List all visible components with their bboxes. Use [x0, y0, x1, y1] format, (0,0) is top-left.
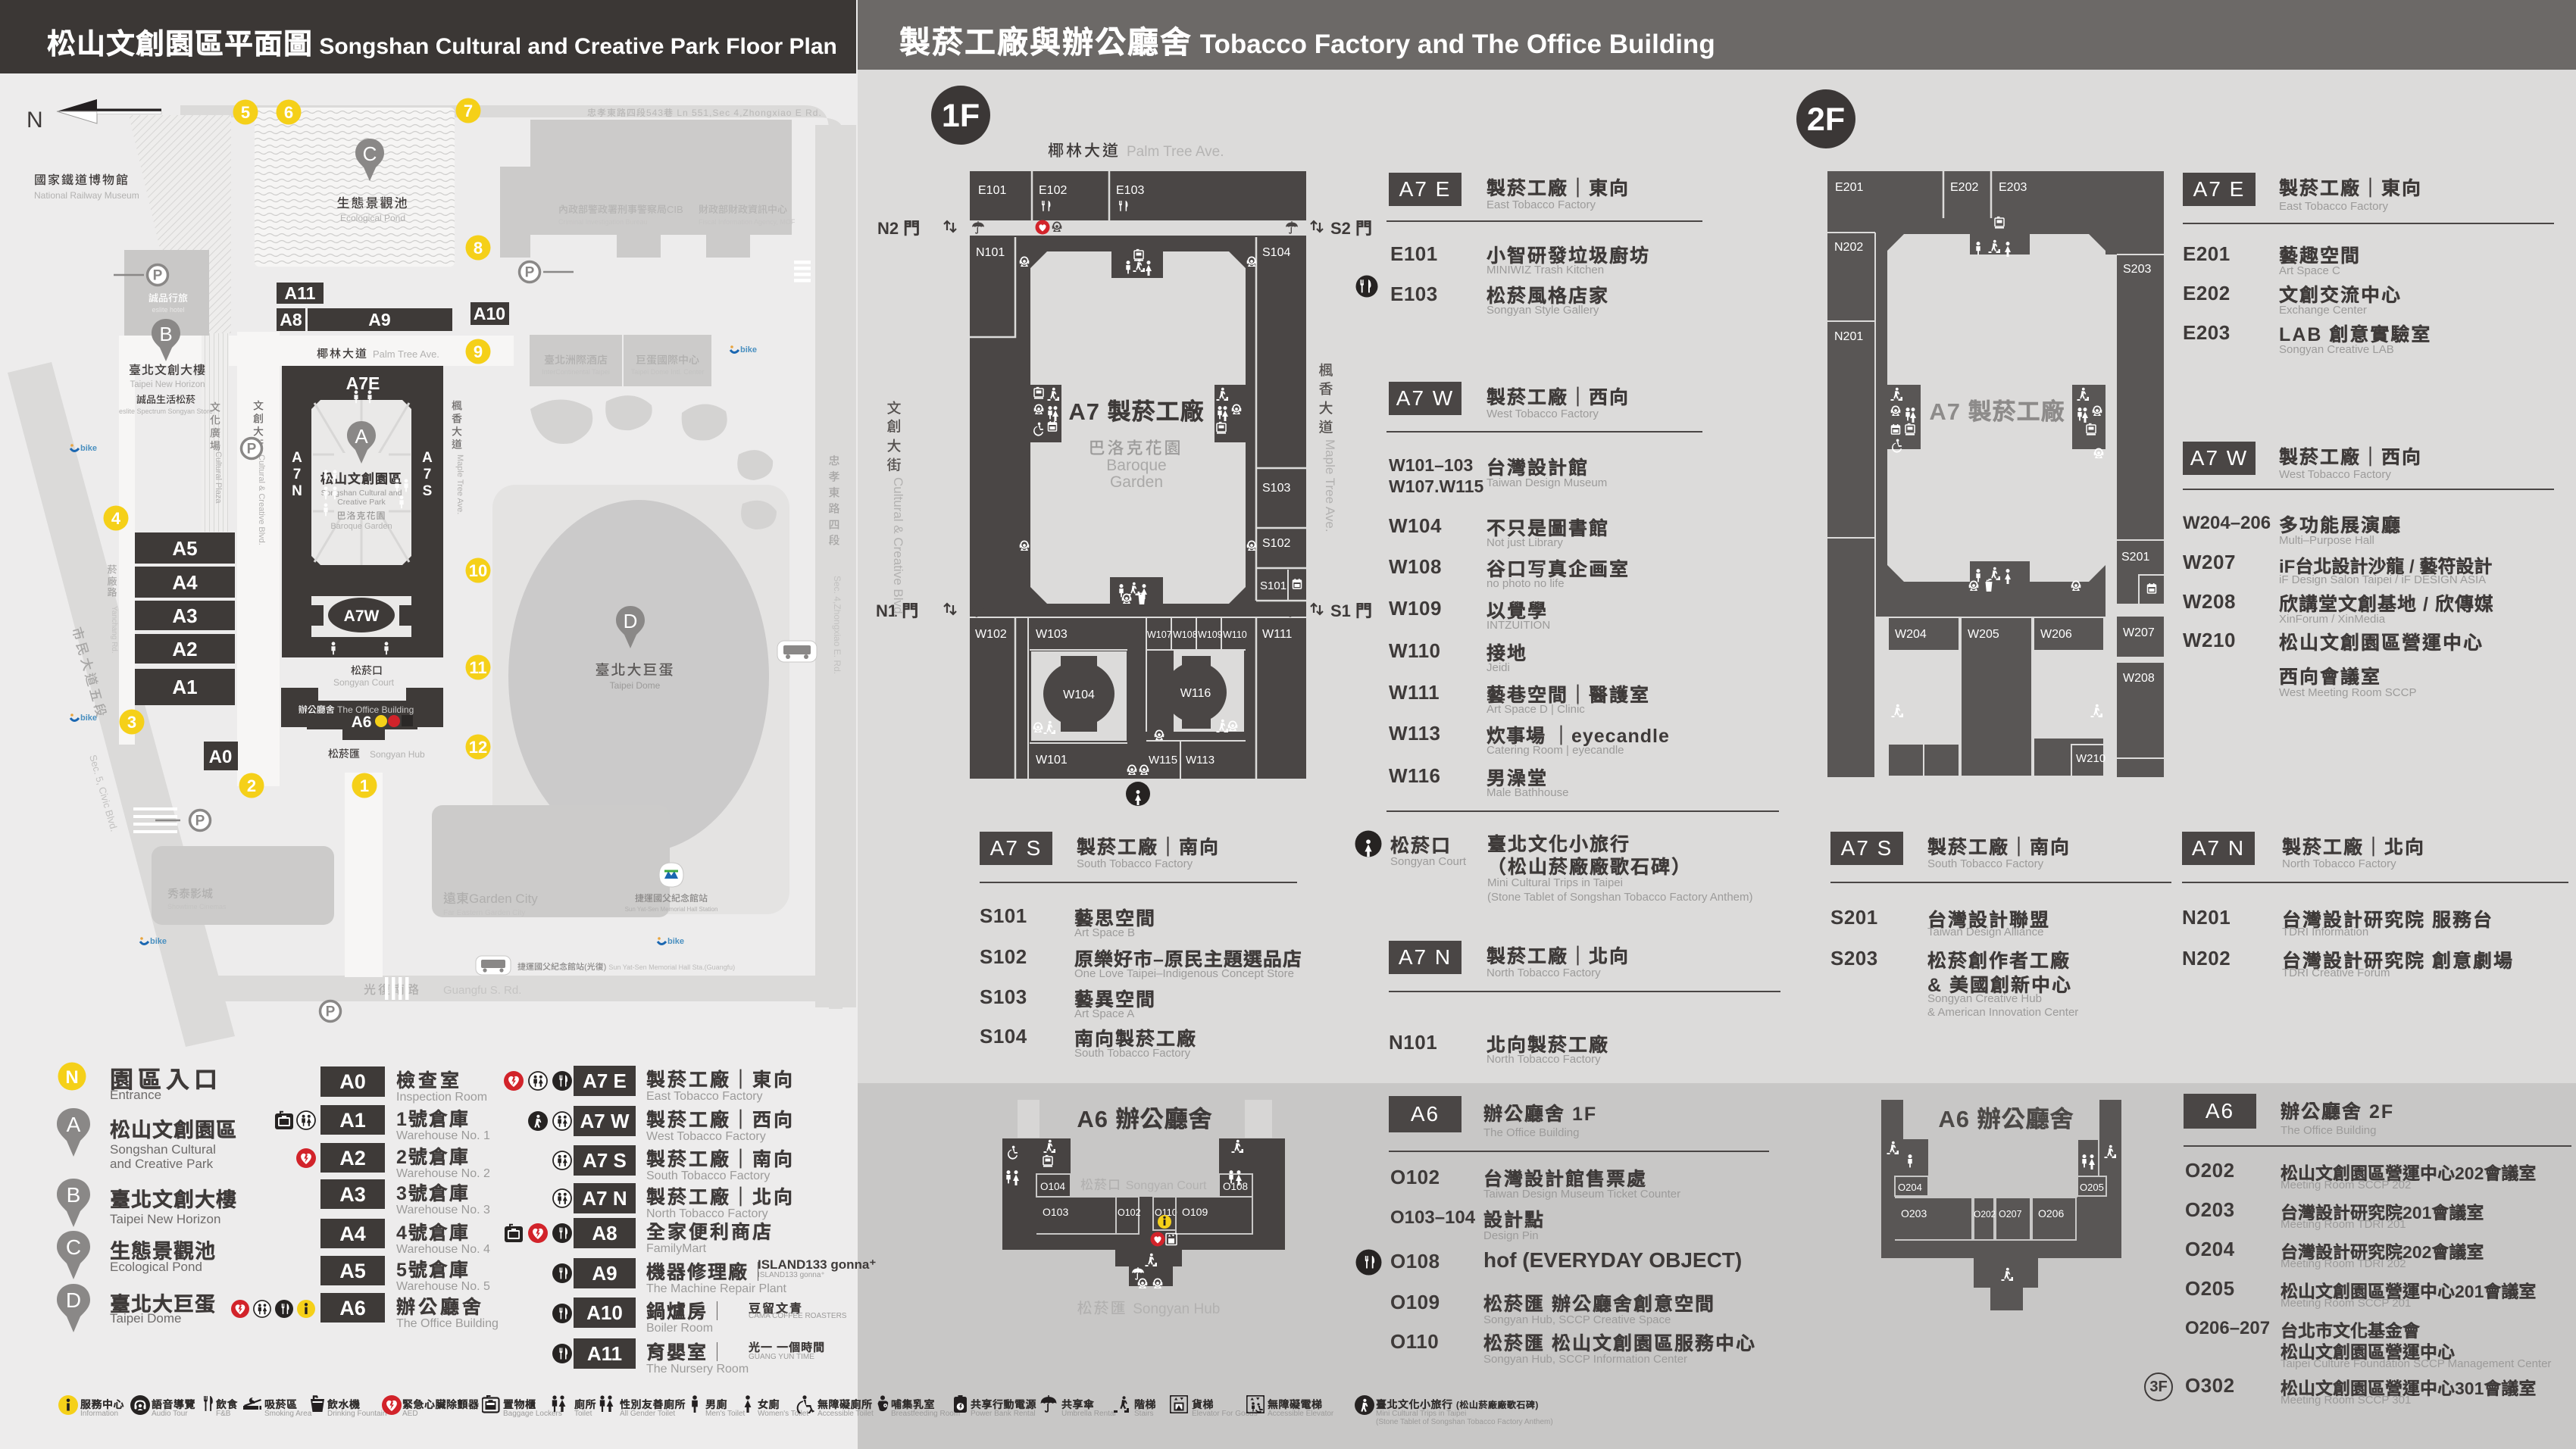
svg-text:D: D [66, 1288, 81, 1312]
svg-text:楓香大道: 楓香大道 [1317, 362, 1333, 438]
svg-text:N101: N101 [976, 246, 1005, 259]
svg-text:W205: W205 [1968, 628, 1999, 641]
svg-text:A5: A5 [172, 537, 197, 560]
svg-text:9: 9 [474, 342, 483, 361]
svg-text:秀泰影城: 秀泰影城 [167, 888, 213, 901]
svg-text:O206: O206 [2038, 1207, 2064, 1219]
svg-text:O202: O202 [1974, 1209, 1996, 1219]
svg-text:Taipei Dome: Taipei Dome [610, 680, 661, 691]
svg-text:2F: 2F [1807, 101, 1845, 138]
svg-text:D: D [624, 610, 638, 632]
svg-text:O205: O205 [2080, 1182, 2104, 1193]
svg-text:Showtime Cinemas: Showtime Cinemas [167, 903, 227, 910]
svg-text:W110: W110 [1223, 629, 1247, 640]
svg-text:Songyan Court: Songyan Court [333, 677, 395, 688]
svg-text:O108: O108 [1223, 1181, 1248, 1192]
svg-text:Songyan Hub: Songyan Hub [370, 749, 425, 760]
svg-text:捷運國父紀念館站(光復) Sun Yat-Sen Memor: 捷運國父紀念館站(光復) Sun Yat-Sen Memorial Hall S… [517, 962, 735, 972]
svg-text:W108: W108 [1173, 629, 1198, 640]
svg-text:A11: A11 [285, 283, 316, 303]
svg-text:A6: A6 [352, 714, 372, 731]
svg-text:椰林大道: 椰林大道 [317, 348, 368, 361]
svg-text:A: A [292, 450, 302, 466]
svg-text:Taipei Dome Intl. Center: Taipei Dome Intl. Center [631, 368, 705, 376]
svg-text:O204: O204 [1898, 1182, 1922, 1193]
svg-text:Cultural & Creative Blvd.: Cultural & Creative Blvd. [257, 454, 266, 545]
svg-text:B: B [159, 323, 172, 345]
svg-text:3: 3 [127, 713, 136, 732]
svg-text:A: A [355, 425, 368, 448]
svg-text:財政部財政資訊中心: 財政部財政資訊中心 [699, 204, 787, 215]
svg-text:10: 10 [469, 561, 487, 580]
svg-text:Creative Park: Creative Park [337, 498, 386, 507]
svg-text:W101: W101 [1036, 754, 1068, 767]
svg-text:Sec. 4,Zhongxiao E. Rd.: Sec. 4,Zhongxiao E. Rd. [832, 576, 843, 674]
svg-text:捷運國父紀念館站: 捷運國父紀念館站 [635, 893, 708, 904]
svg-text:O103: O103 [1043, 1206, 1068, 1218]
svg-text:W210: W210 [2076, 752, 2106, 765]
svg-text:N: N [292, 483, 302, 499]
svg-text:W207: W207 [2123, 626, 2155, 639]
svg-text:N: N [65, 1067, 78, 1088]
svg-text:內政部警政署刑事警察局CIB: 內政部警政署刑事警察局CIB [558, 204, 683, 215]
svg-text:臺北大巨蛋: 臺北大巨蛋 [595, 662, 674, 679]
svg-text:O203: O203 [1901, 1207, 1927, 1219]
svg-text:Maple Tree Ave.: Maple Tree Ave. [455, 454, 464, 514]
svg-text:A9: A9 [368, 310, 390, 329]
svg-text:生態景觀池: 生態景觀池 [337, 196, 409, 211]
svg-text:Cultural & Creative Blvd.: Cultural & Creative Blvd. [891, 477, 905, 617]
svg-text:松菸口: 松菸口 [351, 664, 383, 676]
svg-text:S201: S201 [2121, 551, 2149, 564]
svg-text:E203: E203 [1999, 181, 2027, 194]
svg-text:B: B [67, 1183, 81, 1207]
svg-text:Far Eastern Garden City: Far Eastern Garden City [443, 909, 525, 917]
svg-text:C: C [66, 1235, 81, 1259]
svg-text:W208: W208 [2123, 672, 2155, 685]
svg-text:A7 製菸工廠: A7 製菸工廠 [1068, 398, 1204, 425]
svg-text:A6 辦公廳舍: A6 辦公廳舍 [1938, 1106, 2074, 1132]
svg-text:松菸匯 Songyan Hub: 松菸匯 Songyan Hub [1077, 1301, 1221, 1317]
svg-text:臺北文創大樓: 臺北文創大樓 [129, 364, 206, 377]
svg-text:4: 4 [111, 509, 121, 528]
svg-text:Criminal Investigation Bureau: Criminal Investigation Bureau [558, 218, 648, 226]
svg-text:8: 8 [474, 239, 483, 258]
svg-text:W206: W206 [2040, 628, 2072, 641]
svg-text:7: 7 [464, 101, 473, 120]
svg-text:N202: N202 [1834, 241, 1863, 254]
svg-text:Guangfu S. Rd.: Guangfu S. Rd. [443, 984, 521, 997]
svg-text:6: 6 [284, 103, 293, 122]
svg-text:臺北洲際酒店: 臺北洲際酒店 [544, 354, 608, 366]
svg-text:楓香大道: 楓香大道 [451, 400, 463, 451]
svg-text:W113: W113 [1186, 754, 1215, 767]
svg-text:12: 12 [469, 738, 487, 757]
svg-text:N2 門: N2 門 [877, 219, 920, 238]
svg-text:E201: E201 [1835, 181, 1863, 194]
svg-text:National Railway Museum: National Railway Museum [34, 190, 139, 201]
svg-text:1F: 1F [942, 98, 980, 134]
svg-text:忠孝東路四段: 忠孝東路四段 [827, 454, 840, 550]
svg-text:A: A [67, 1113, 81, 1136]
svg-text:A7W: A7W [344, 607, 380, 625]
svg-text:S103: S103 [1262, 482, 1290, 495]
svg-text:7: 7 [293, 467, 302, 482]
svg-text:Sun Yat-Sen Memorial Hall Stat: Sun Yat-Sen Memorial Hall Station [625, 906, 718, 913]
svg-text:N201: N201 [1834, 330, 1863, 343]
svg-text:eslite hotel: eslite hotel [152, 306, 184, 314]
svg-text:A: A [422, 450, 433, 466]
svg-text:松山文創園區: 松山文創園區 [320, 472, 402, 486]
svg-text:巴洛克花園: 巴洛克花園 [1088, 439, 1183, 457]
svg-text:2: 2 [247, 776, 256, 795]
svg-text:W103: W103 [1036, 628, 1068, 641]
svg-text:遠東Garden City: 遠東Garden City [443, 892, 538, 906]
svg-text:巨蛋國際中心: 巨蛋國際中心 [636, 354, 699, 366]
svg-text:O109: O109 [1182, 1206, 1208, 1218]
svg-text:Palm Tree Ave.: Palm Tree Ave. [373, 348, 439, 360]
svg-text:W109: W109 [1198, 629, 1223, 640]
svg-text:A10: A10 [474, 304, 505, 323]
svg-text:S203: S203 [2123, 263, 2151, 276]
svg-text:A1: A1 [172, 676, 197, 698]
svg-text:Maple Tree Ave.: Maple Tree Ave. [1323, 439, 1337, 532]
svg-text:Ecological Pond: Ecological Pond [340, 213, 405, 223]
svg-text:5: 5 [241, 103, 250, 122]
svg-text:W104: W104 [1063, 689, 1095, 701]
svg-text:松菸口 Songyan Court: 松菸口 Songyan Court [1080, 1178, 1207, 1192]
svg-text:7: 7 [424, 467, 432, 482]
svg-text:N: N [27, 108, 43, 133]
svg-text:A7 製菸工廠: A7 製菸工廠 [1929, 398, 2065, 425]
svg-text:國家鐵道博物館: 國家鐵道博物館 [34, 173, 130, 187]
svg-text:W102: W102 [975, 628, 1007, 641]
svg-text:O102: O102 [1118, 1207, 1141, 1218]
svg-text:S104: S104 [1262, 246, 1290, 259]
svg-text:A6 辦公廳舍: A6 辦公廳舍 [1077, 1106, 1212, 1132]
svg-text:W204: W204 [1895, 628, 1927, 641]
svg-text:S102: S102 [1262, 537, 1290, 550]
svg-text:S: S [423, 483, 433, 499]
svg-text:S101: S101 [1260, 579, 1286, 592]
svg-text:A4: A4 [172, 571, 198, 594]
svg-text:W111: W111 [1262, 628, 1293, 641]
svg-text:E101: E101 [978, 184, 1006, 197]
svg-text:Garden: Garden [1110, 473, 1163, 491]
svg-text:A3: A3 [172, 604, 197, 627]
svg-text:文創大街: 文創大街 [885, 400, 902, 476]
svg-text:Yanchang Rd.: Yanchang Rd. [110, 606, 118, 654]
svg-text:A8: A8 [280, 310, 302, 329]
svg-text:椰林大道: 椰林大道 [1048, 142, 1121, 160]
svg-text:W115: W115 [1149, 754, 1177, 767]
svg-text:1: 1 [360, 776, 369, 795]
svg-text:Cultural Plaza: Cultural Plaza [214, 451, 223, 504]
svg-text:誠品生活松菸: 誠品生活松菸 [136, 394, 195, 405]
svg-text:O207: O207 [1999, 1209, 2022, 1219]
svg-text:菸廠路: 菸廠路 [106, 564, 117, 598]
svg-text:A0: A0 [209, 747, 233, 767]
svg-text:松菸匯: 松菸匯 [328, 748, 360, 760]
svg-text:Palm Tree Ave.: Palm Tree Ave. [1127, 144, 1224, 160]
svg-text:A7E: A7E [346, 373, 380, 393]
svg-text:誠品行旅: 誠品行旅 [148, 292, 188, 304]
svg-text:W116: W116 [1180, 687, 1211, 700]
svg-text:Taipei New Horizon: Taipei New Horizon [130, 380, 205, 389]
svg-text:C: C [363, 142, 377, 165]
svg-text:InterContinental Taipei: InterContinental Taipei [542, 368, 609, 376]
svg-text:巴洛克花園: 巴洛克花園 [336, 511, 386, 521]
svg-text:A2: A2 [172, 638, 197, 660]
svg-text:E202: E202 [1950, 181, 1978, 194]
svg-text:S1 門: S1 門 [1330, 601, 1372, 620]
svg-text:O104: O104 [1040, 1181, 1066, 1192]
svg-text:E103: E103 [1116, 184, 1144, 197]
svg-text:W107: W107 [1147, 629, 1172, 640]
svg-text:Baroque: Baroque [1106, 457, 1166, 474]
svg-text:E102: E102 [1039, 184, 1067, 197]
svg-text:忠孝東路四段543巷 Ln 551,Sec 4,Zhong: 忠孝東路四段543巷 Ln 551,Sec 4,Zhongxiao E Rd. [587, 108, 822, 118]
svg-text:S2 門: S2 門 [1330, 219, 1372, 238]
svg-text:Baroque Garden: Baroque Garden [330, 522, 392, 531]
svg-text:11: 11 [469, 658, 486, 677]
svg-text:eslite Spectrum Songyan Store: eslite Spectrum Songyan Store [119, 408, 213, 415]
svg-text:Fiscal Information Agency, MOF: Fiscal Information Agency, MOF [699, 218, 796, 226]
